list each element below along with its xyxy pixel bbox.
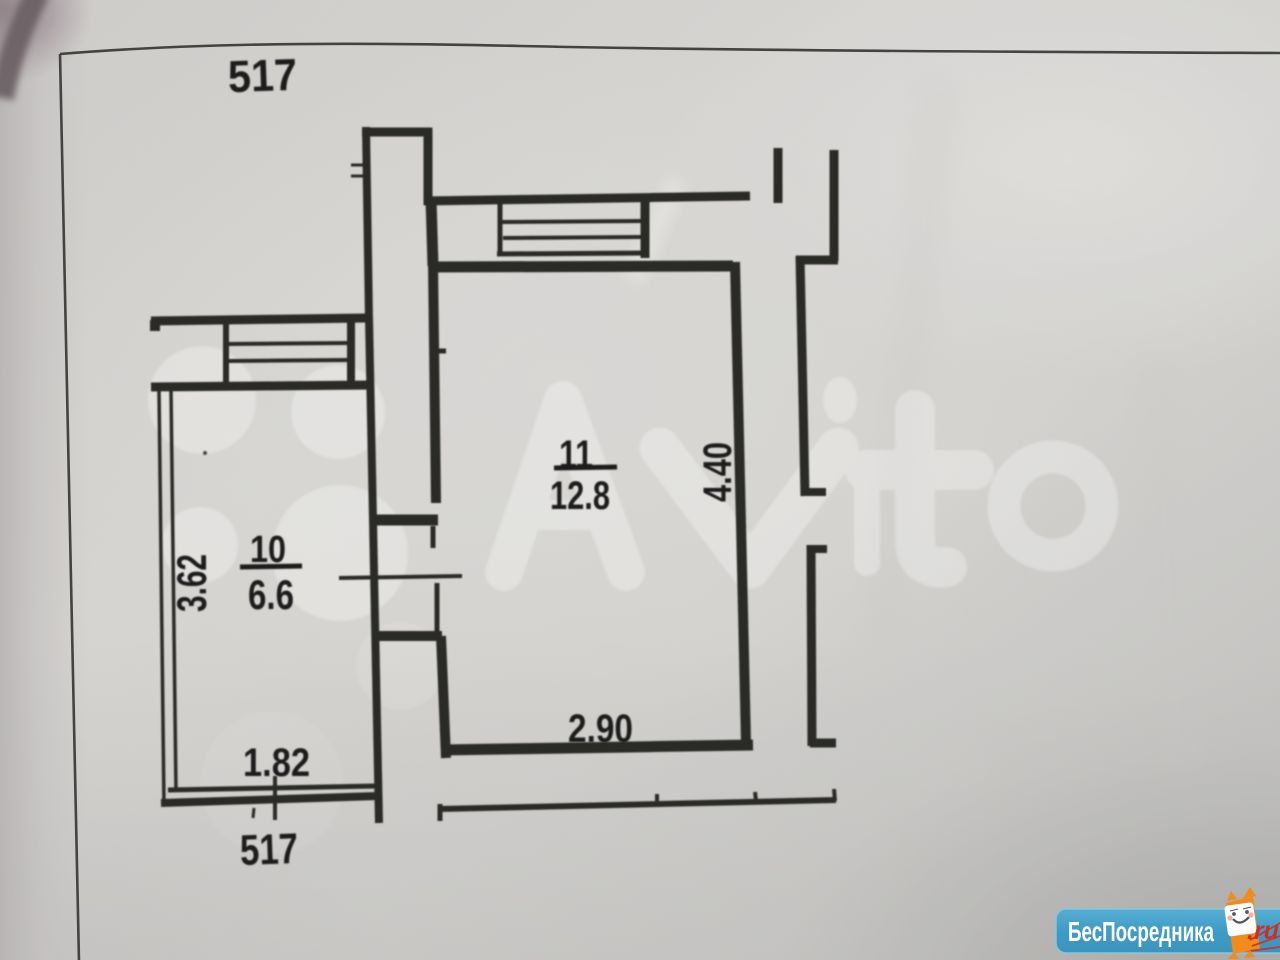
svg-text:БесПосредника: БесПосредника xyxy=(1068,916,1214,947)
svg-text:3.62: 3.62 xyxy=(168,554,215,612)
svg-text:1.82: 1.82 xyxy=(243,741,310,785)
svg-text:6.6: 6.6 xyxy=(248,571,294,618)
svg-text:517: 517 xyxy=(227,49,298,102)
svg-text:.ru: .ru xyxy=(1247,917,1279,945)
svg-text:11: 11 xyxy=(559,433,593,477)
svg-text:2.90: 2.90 xyxy=(568,707,633,751)
svg-text:12.8: 12.8 xyxy=(550,474,610,518)
svg-text:517: 517 xyxy=(239,825,299,875)
svg-text:4.40: 4.40 xyxy=(696,442,740,502)
